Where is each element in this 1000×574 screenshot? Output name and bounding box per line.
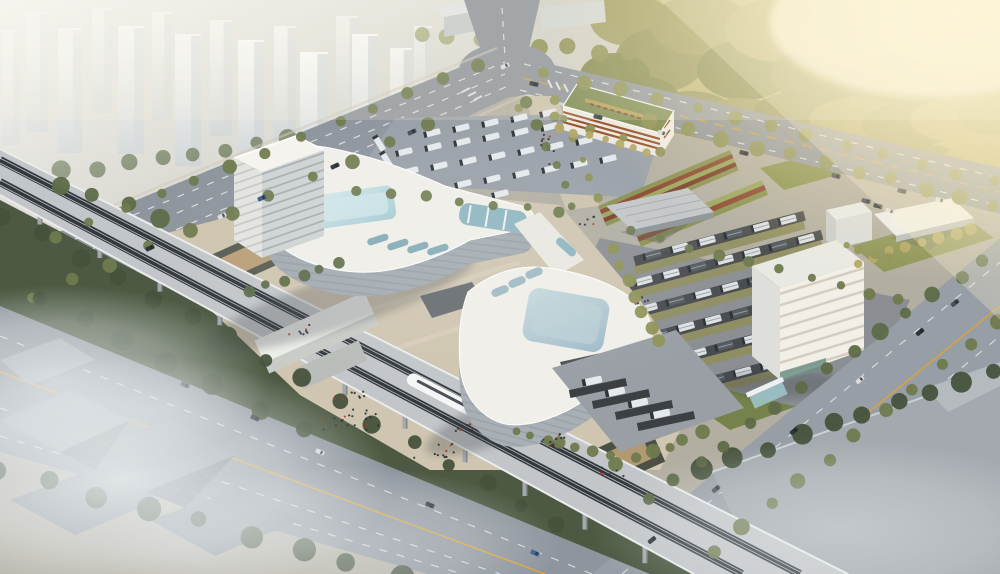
person — [455, 430, 457, 432]
tree — [102, 258, 116, 272]
person — [607, 474, 609, 476]
aerial-rendering-transit-hub — [0, 0, 1000, 574]
tree — [922, 384, 938, 400]
tree — [951, 372, 972, 393]
tree — [825, 413, 844, 432]
tree — [587, 445, 599, 457]
person — [469, 423, 471, 425]
person — [352, 408, 354, 410]
person — [549, 445, 551, 447]
person — [469, 429, 471, 431]
person — [541, 440, 543, 442]
person — [453, 451, 455, 453]
person — [451, 443, 453, 445]
person — [549, 441, 551, 443]
tree — [34, 225, 50, 241]
person — [434, 453, 436, 455]
tree — [695, 424, 710, 439]
tree — [891, 393, 907, 409]
tree — [443, 459, 455, 471]
scene-canvas — [0, 0, 1000, 574]
tree — [676, 434, 688, 446]
person — [445, 456, 447, 458]
person — [459, 429, 461, 431]
tree — [608, 457, 623, 472]
person — [437, 454, 439, 456]
person — [559, 433, 561, 435]
tree — [795, 381, 808, 394]
person — [467, 424, 469, 426]
tree — [49, 231, 62, 244]
tree — [768, 401, 781, 414]
person — [622, 475, 624, 477]
tree — [513, 427, 521, 435]
person — [354, 392, 356, 394]
person — [366, 409, 368, 411]
person — [341, 398, 343, 400]
tree — [906, 384, 918, 396]
person — [334, 398, 336, 400]
person — [610, 475, 612, 477]
warm-cast — [0, 0, 1000, 120]
tree — [853, 407, 870, 424]
tree — [879, 403, 893, 417]
person — [375, 413, 377, 415]
tree — [121, 203, 131, 213]
person — [552, 443, 554, 445]
person — [365, 418, 367, 420]
person — [445, 450, 447, 452]
person — [560, 437, 562, 439]
person — [616, 469, 618, 471]
tree — [408, 435, 422, 449]
person — [442, 454, 444, 456]
tree — [72, 249, 91, 268]
tree — [570, 443, 580, 453]
tree — [85, 188, 99, 202]
tree — [646, 444, 661, 459]
person — [369, 416, 371, 418]
person — [457, 428, 459, 430]
person — [563, 437, 565, 439]
person — [366, 424, 368, 426]
person — [438, 444, 440, 446]
tree — [631, 452, 641, 462]
tree — [66, 273, 78, 285]
person — [377, 425, 379, 427]
person — [601, 467, 603, 469]
person — [363, 395, 365, 397]
person — [471, 429, 473, 431]
tree — [84, 218, 93, 227]
person — [602, 473, 604, 475]
person — [542, 439, 544, 441]
tree — [745, 417, 756, 428]
tree — [526, 432, 534, 440]
tree — [665, 443, 674, 452]
person — [364, 412, 366, 414]
person — [555, 438, 557, 440]
person — [351, 392, 353, 394]
person — [413, 457, 415, 459]
person — [600, 472, 602, 474]
tree — [543, 435, 553, 445]
person — [443, 456, 445, 458]
person — [358, 395, 360, 397]
tree — [52, 177, 70, 195]
